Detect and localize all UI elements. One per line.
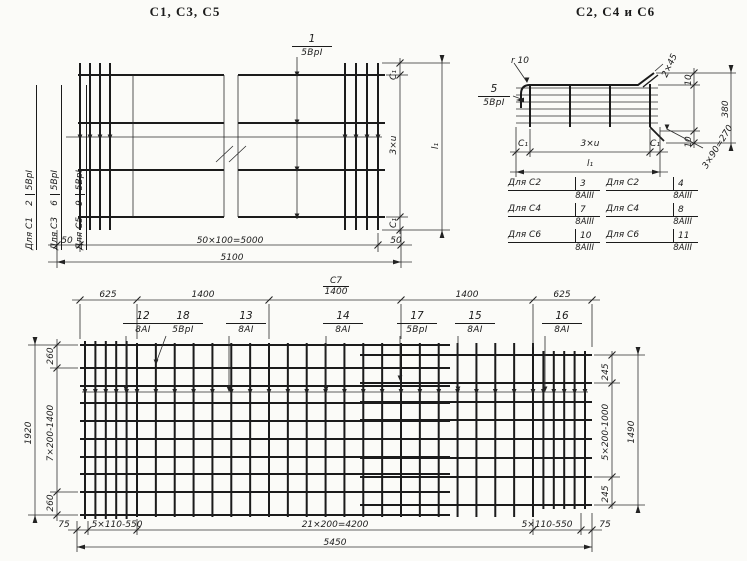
row-for: Для С2 xyxy=(606,177,674,190)
wire-label-15: 15 8АI xyxy=(455,311,495,335)
wire-class: 8АI xyxy=(323,324,363,335)
mesh-title-left: С1, С3, С5 xyxy=(130,4,240,20)
wire-label-5: 5 5ВрI xyxy=(478,84,510,108)
dim-75-left: 75 xyxy=(53,520,75,530)
dim-5x110-left: 5×110-550 xyxy=(88,520,146,530)
wire-label-17: 17 5ВрI xyxy=(397,311,437,335)
dim-c1-left: С₁ xyxy=(512,139,534,149)
spec-table-right: Для С24 8АIII Для С48 8АIII Для С611 8АI… xyxy=(606,177,698,255)
wire-number: 15 xyxy=(455,311,495,324)
dim-260-top: 260 xyxy=(46,342,56,370)
mesh-mark-c7: С7 1400 xyxy=(317,276,355,297)
row-for: Для С6 xyxy=(508,229,576,242)
dim-21x200: 21×200=4200 xyxy=(286,520,384,530)
dim-l1: l₁ xyxy=(575,159,605,169)
row-num: 8 xyxy=(674,204,698,216)
dim-c1-bot: С₁ xyxy=(389,214,399,232)
row-num: 6 xyxy=(50,194,60,211)
wire-label-13: 13 8АI xyxy=(226,311,266,335)
wire-number: 16 xyxy=(542,311,582,324)
row-num: 11 xyxy=(674,230,698,242)
table-row: Для С47 8АIII xyxy=(508,203,600,227)
mesh-c1c3c5-lines xyxy=(28,55,736,552)
dim-245-top: 245 xyxy=(601,358,611,386)
dim-75-right: 75 xyxy=(594,520,616,530)
wire-class: 8АI xyxy=(455,324,495,335)
row-num: 4 xyxy=(674,178,698,190)
row-class: 8АIII xyxy=(508,217,600,227)
dim-1490: 1490 xyxy=(627,407,637,457)
drawing-sheet: С1, С3, С5 С2, С4 и С6 1 5ВрI Для С1 2 5… xyxy=(0,0,747,561)
row-class: 8АIII xyxy=(508,191,600,201)
wire-label-12: 12 8АI xyxy=(123,311,163,335)
row-class: 5ВрI xyxy=(25,166,35,194)
wire-number: 13 xyxy=(226,311,266,324)
row-class: 8АIII xyxy=(508,243,600,253)
row-for: Для С6 xyxy=(606,229,674,242)
wire-number: 14 xyxy=(323,311,363,324)
row-for: Для С4 xyxy=(508,203,576,216)
row-class: 8АIII xyxy=(606,191,698,201)
table-row: Для С24 8АIII xyxy=(606,177,698,201)
row-num: 9 xyxy=(75,194,85,211)
dim-5450: 5450 xyxy=(310,538,360,548)
wire-number: 5 xyxy=(478,84,510,97)
wire-label-14: 14 8АI xyxy=(323,311,363,335)
wire-label-1: 1 5ВрI xyxy=(292,34,332,58)
wire-number: 17 xyxy=(397,311,437,324)
dim-3xu: 3×u xyxy=(568,139,612,149)
dim-7x200: 7×200-1400 xyxy=(46,392,56,474)
wire-label-16: 16 8АI xyxy=(542,311,582,335)
dim-10-bot: 10 xyxy=(684,132,694,152)
row-for: Для С1 xyxy=(25,211,35,250)
dim-625-left: 625 xyxy=(94,290,122,300)
dim-5x200: 5×200-1000 xyxy=(601,389,611,475)
dim-1400-c: 1400 xyxy=(449,290,485,300)
wire-class: 8АI xyxy=(123,324,163,335)
dim-c1-right: С₁ xyxy=(644,139,666,149)
dim-50x100: 50×100=5000 xyxy=(168,236,292,246)
wire-class: 5ВрI xyxy=(292,47,332,58)
wire-label-18: 18 5ВрI xyxy=(163,311,203,335)
wire-class: 8АI xyxy=(542,324,582,335)
row-class: 8АIII xyxy=(606,243,698,253)
mesh-title-right: С2, С4 и С6 xyxy=(558,4,673,20)
table-row: Для С611 8АIII xyxy=(606,229,698,253)
row-num: 7 xyxy=(576,204,600,216)
wire-number: 18 xyxy=(163,311,203,324)
row-class: 8АIII xyxy=(606,217,698,227)
radius-label: r 10 xyxy=(505,56,535,66)
row-class: 5ВрI xyxy=(50,166,60,194)
dim-260-bot: 260 xyxy=(46,489,56,517)
dim-1400-a: 1400 xyxy=(185,290,221,300)
row-class: 5ВрI xyxy=(75,166,85,194)
dim-3xu: 3×u xyxy=(389,127,399,163)
wire-number: 1 xyxy=(292,34,332,47)
wire-class: 5ВрI xyxy=(163,324,203,335)
table-row: Для С610 8АIII xyxy=(508,229,600,253)
dim-1400-b: 1400 xyxy=(317,287,355,297)
row-label-c3: Для С3 6 5ВрI xyxy=(50,85,62,250)
wire-class: 5ВрI xyxy=(478,97,510,108)
table-row: Для С23 8АIII xyxy=(508,177,600,201)
wire-number: 12 xyxy=(123,311,163,324)
dim-5x110-right: 5×110-550 xyxy=(518,520,576,530)
spec-table-left: Для С23 8АIII Для С47 8АIII Для С610 8АI… xyxy=(508,177,600,255)
row-num: 3 xyxy=(576,178,600,190)
dim-245-bot: 245 xyxy=(601,480,611,508)
dim-10-top: 10 xyxy=(684,70,694,90)
table-row: Для С48 8АIII xyxy=(606,203,698,227)
wire-class: 8АI xyxy=(226,324,266,335)
dim-50-left: 50 xyxy=(57,236,77,246)
dim-l1: l₁ xyxy=(431,135,441,157)
row-num: 10 xyxy=(576,230,600,242)
dim-5100: 5100 xyxy=(207,253,257,263)
dim-c1-top: С₁ xyxy=(389,66,399,84)
mark-text: С7 xyxy=(323,276,349,287)
dim-625-right: 625 xyxy=(548,290,576,300)
linework-canvas xyxy=(0,0,747,561)
row-for: Для С2 xyxy=(508,177,576,190)
dim-50-right: 50 xyxy=(384,236,408,246)
dim-1920: 1920 xyxy=(24,408,34,458)
wire-class: 5ВрI xyxy=(397,324,437,335)
row-for: Для С4 xyxy=(606,203,674,216)
row-num: 2 xyxy=(25,194,35,211)
row-label-c5: Для С5 9 5ВрI xyxy=(75,85,87,250)
row-label-c1: Для С1 2 5ВрI xyxy=(25,85,37,250)
